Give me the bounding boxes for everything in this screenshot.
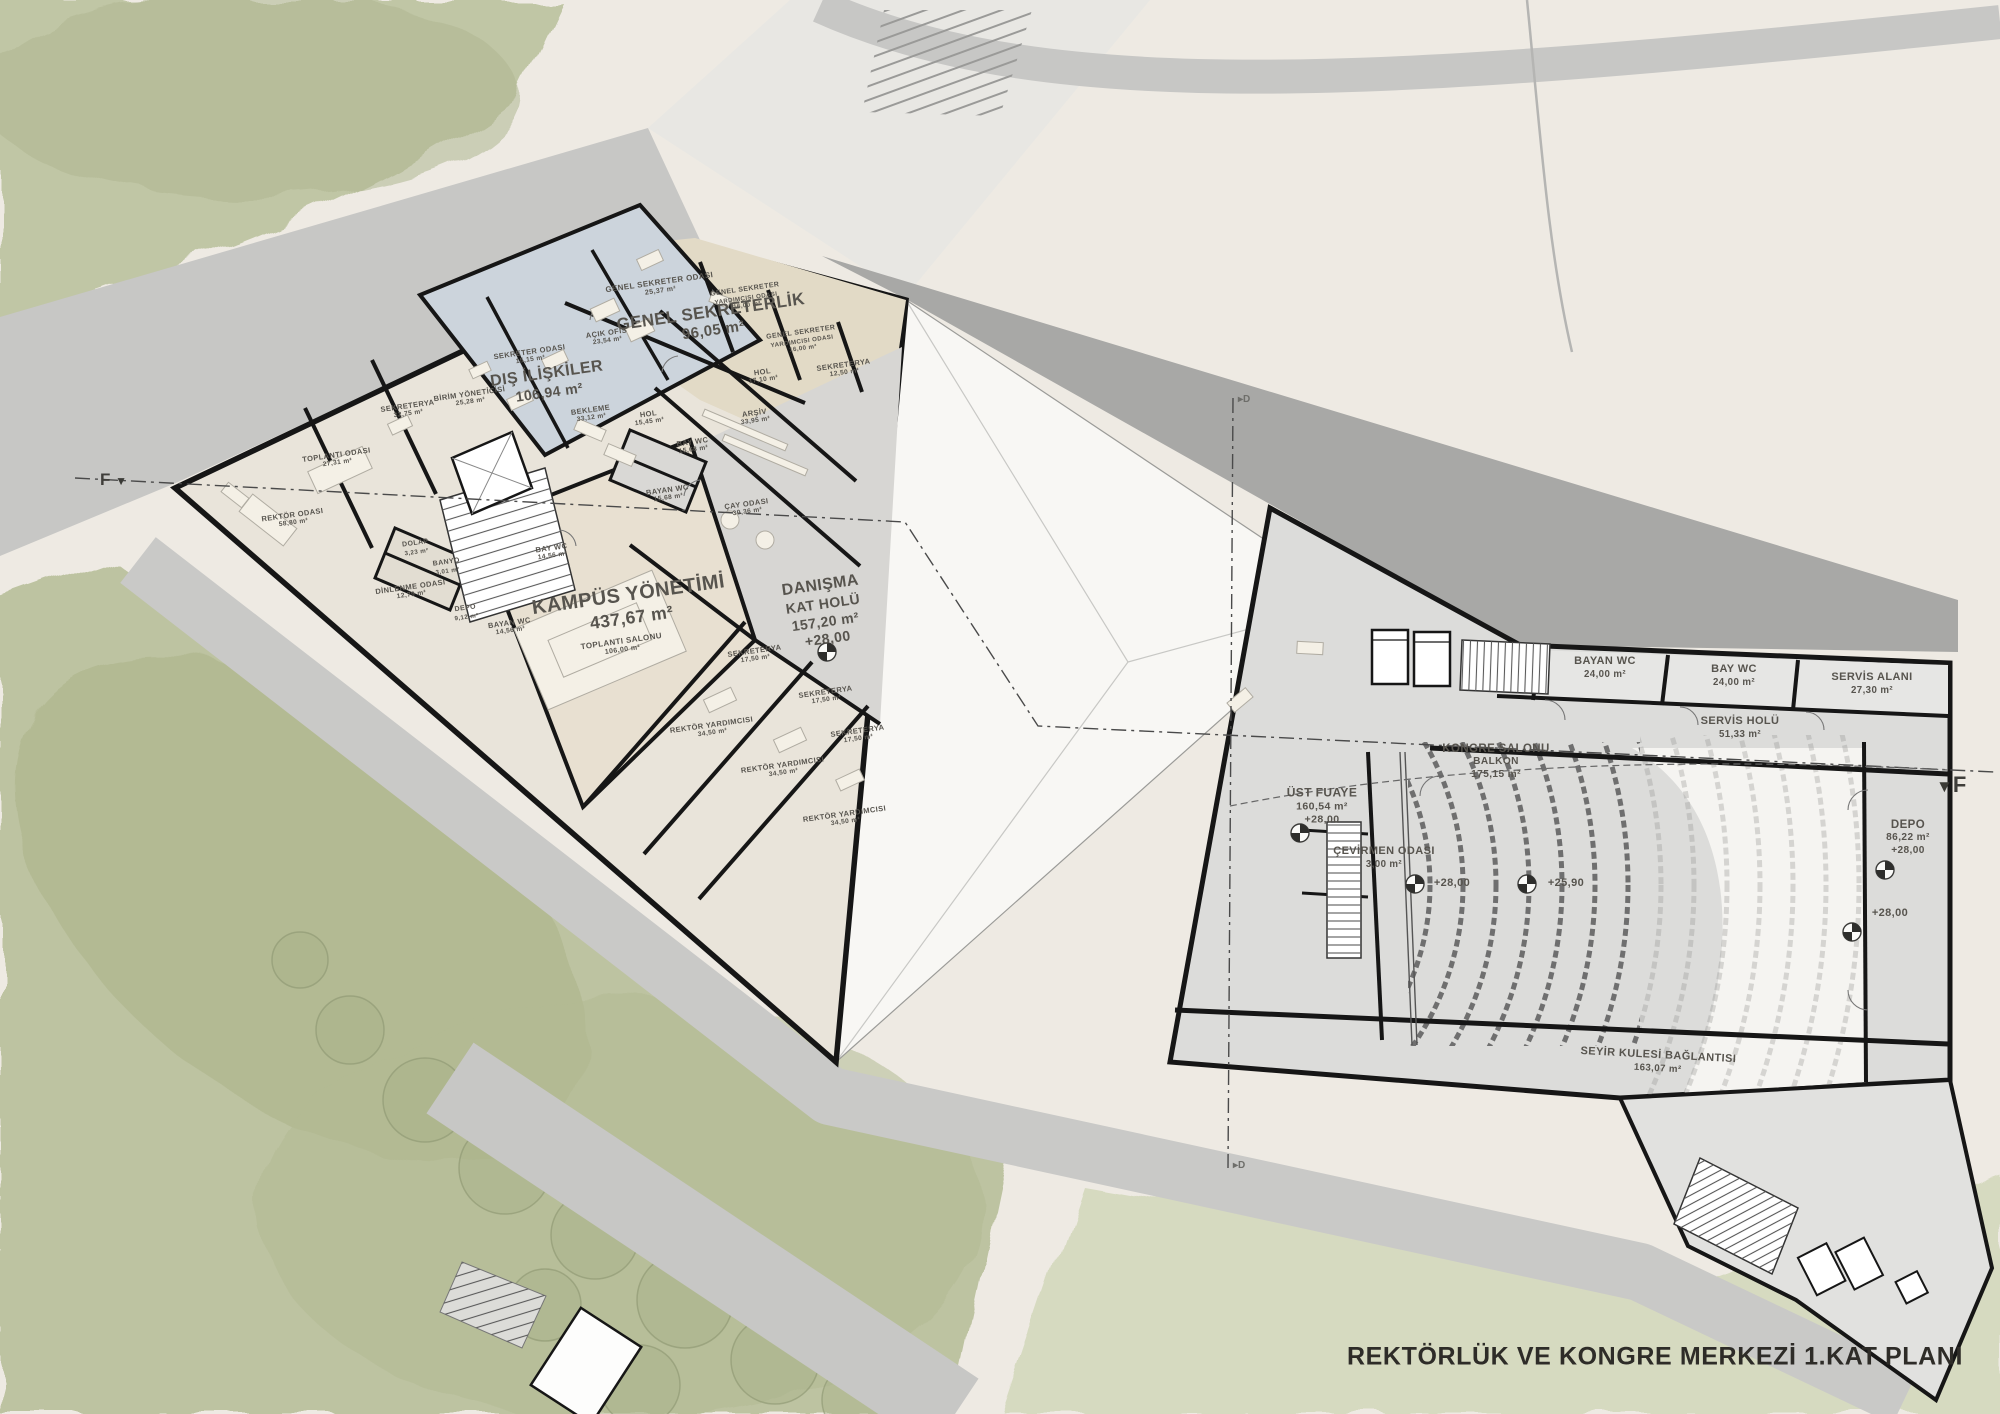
- room-label: ÇEVİRMEN ODASI3,00 m²: [1333, 845, 1435, 871]
- room-label: DEPO9,12 m²: [453, 603, 479, 623]
- room-label: DANIŞMAKAT HOLÜ157,20 m²+28,00: [781, 571, 868, 654]
- room-label: DEPO86,22 m²+28,00: [1886, 818, 1930, 858]
- plan-title: REKTÖRLÜK VE KONGRE MERKEZİ 1.KAT PLANI: [1347, 1343, 1963, 1372]
- section-marker-f-right: ▼F: [1936, 772, 1966, 798]
- section-marker-d-bottom: ▸D: [1233, 1160, 1245, 1171]
- triangle-down-icon: ▼: [1936, 777, 1953, 797]
- room-label: KONGRE SALONUBALKON175,15 m²: [1442, 742, 1549, 782]
- section-marker-f-left: F ▼: [100, 470, 127, 490]
- room-label: +25,90: [1548, 877, 1584, 891]
- section-marker-d-top: ▸D: [1238, 394, 1250, 405]
- room-label: +28,00: [1434, 877, 1470, 891]
- floor-plan-drawing: [0, 0, 2000, 1414]
- floor-plan-sheet: GENEL SEKRETER ODASI25,37 m²GENEL SEKRET…: [0, 0, 2000, 1414]
- room-label: SERVİS HOLÜ51,33 m²: [1701, 715, 1780, 741]
- room-label: +28,00: [1872, 907, 1908, 921]
- room-label: BAYAN WC24,00 m²: [1574, 655, 1636, 681]
- triangle-down-icon: ▼: [115, 474, 127, 488]
- room-label: BAY WC24,00 m²: [1711, 663, 1757, 689]
- room-label: ÜST FUAYE160,54 m²+28,00: [1287, 785, 1358, 826]
- room-label: SERVİS ALANI27,30 m²: [1831, 671, 1912, 697]
